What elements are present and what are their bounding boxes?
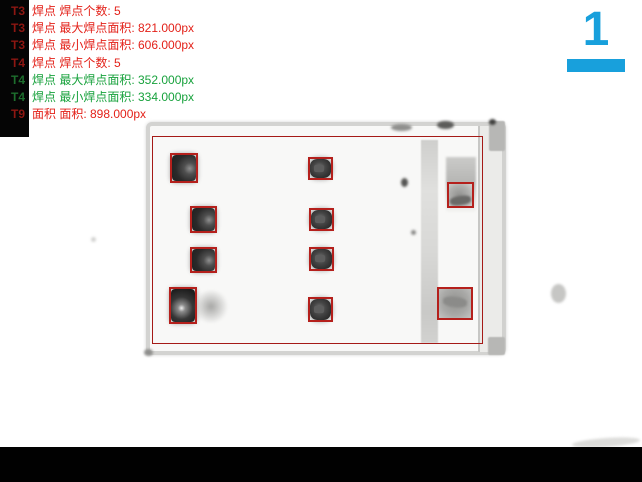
- page-number[interactable]: 1: [570, 4, 622, 56]
- page-indicator-underline: [567, 59, 625, 72]
- stain-nub-bottom-left: [144, 349, 153, 356]
- tool-tag: T9: [11, 106, 29, 123]
- measurement-line: T9面积 面积: 898.000px: [0, 106, 430, 123]
- component-tab-top-right: [489, 121, 505, 151]
- stain-dot-top-right: [489, 119, 496, 125]
- detection-box: [447, 182, 474, 208]
- measurement-text: 焊点 最大焊点面积: 352.000px: [32, 73, 194, 87]
- bottom-letterbox: [0, 447, 642, 482]
- stain-top-edge-1: [391, 124, 412, 131]
- measurement-line: T3焊点 焊点个数: 5: [0, 3, 430, 20]
- measurement-line: T4焊点 最大焊点面积: 352.000px: [0, 72, 430, 89]
- detection-box: [437, 287, 473, 320]
- tool-tag: T3: [11, 3, 29, 20]
- detection-box: [190, 206, 217, 233]
- measurement-line: T3焊点 最大焊点面积: 821.000px: [0, 20, 430, 37]
- stain-faint-dot-left: [91, 237, 96, 242]
- detection-box: [309, 208, 334, 231]
- tool-tag: T3: [11, 20, 29, 37]
- measurement-overlay: T3焊点 焊点个数: 5 T3焊点 最大焊点面积: 821.000px T3焊点…: [0, 3, 430, 123]
- detection-box: [308, 297, 333, 322]
- measurement-line: T4焊点 最小焊点面积: 334.000px: [0, 89, 430, 106]
- measurement-line: T4焊点 焊点个数: 5: [0, 55, 430, 72]
- detection-box: [308, 157, 333, 180]
- stain-blob-right-of-component: [551, 284, 566, 303]
- detection-box: [170, 153, 198, 183]
- tool-tag: T4: [11, 89, 29, 106]
- measurement-text: 焊点 最大焊点面积: 821.000px: [32, 21, 194, 35]
- measurement-text: 焊点 焊点个数: 5: [32, 4, 121, 18]
- measurement-text: 焊点 最小焊点面积: 606.000px: [32, 38, 194, 52]
- measurement-text: 焊点 焊点个数: 5: [32, 56, 121, 70]
- stain-top-edge-2: [437, 121, 454, 129]
- detection-box: [190, 247, 217, 273]
- detection-box: [169, 287, 197, 324]
- tool-tag: T4: [11, 55, 29, 72]
- component-tab-bottom-right: [488, 337, 505, 355]
- inspection-result-screen: T3焊点 焊点个数: 5 T3焊点 最大焊点面积: 821.000px T3焊点…: [0, 0, 642, 482]
- tool-tag: T3: [11, 37, 29, 54]
- measurement-text: 焊点 最小焊点面积: 334.000px: [32, 90, 194, 104]
- measurement-line: T3焊点 最小焊点面积: 606.000px: [0, 37, 430, 54]
- measurement-text: 面积 面积: 898.000px: [32, 107, 146, 121]
- detection-box: [309, 247, 334, 271]
- tool-tag: T4: [11, 72, 29, 89]
